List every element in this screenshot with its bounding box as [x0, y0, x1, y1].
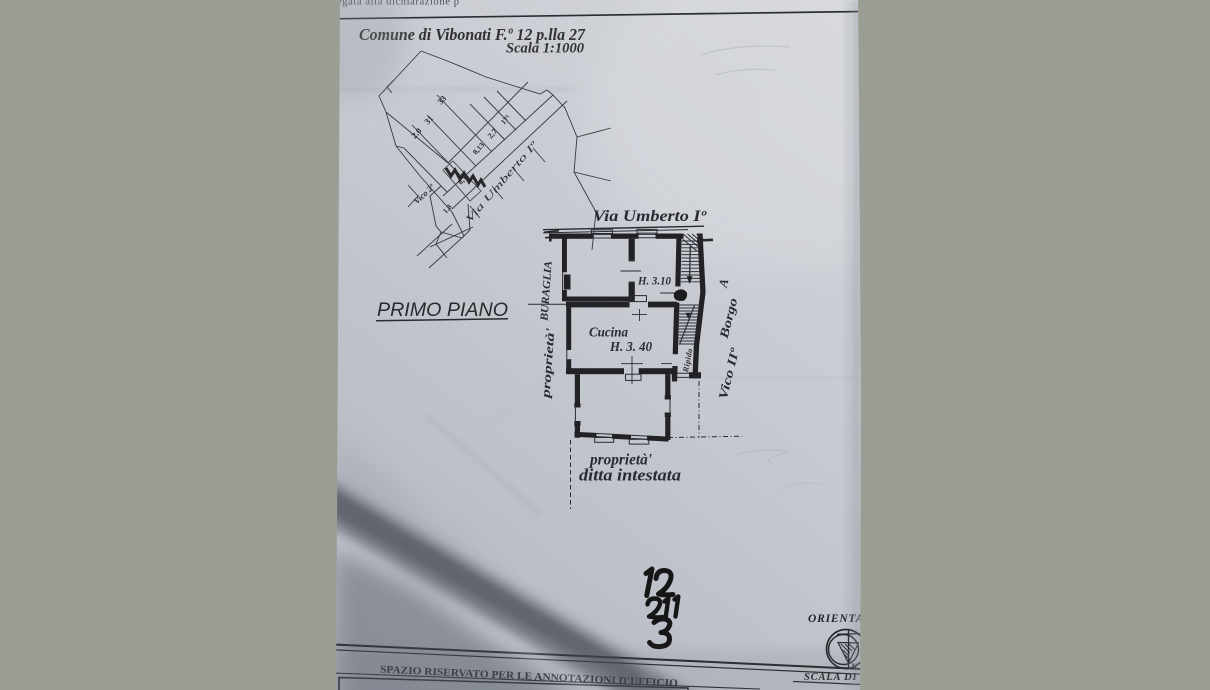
svg-text:Via Umberto Iº: Via Umberto Iº [593, 208, 708, 225]
svg-text:PRIMO PIANO: PRIMO PIANO [377, 300, 508, 321]
svg-text:H. 3. 40: H. 3. 40 [609, 339, 652, 354]
svg-text:H. 3.10: H. 3.10 [637, 274, 671, 288]
svg-text:Scala 1:1000: Scala 1:1000 [506, 41, 584, 57]
svg-text:ditta intestata: ditta intestata [579, 466, 682, 485]
